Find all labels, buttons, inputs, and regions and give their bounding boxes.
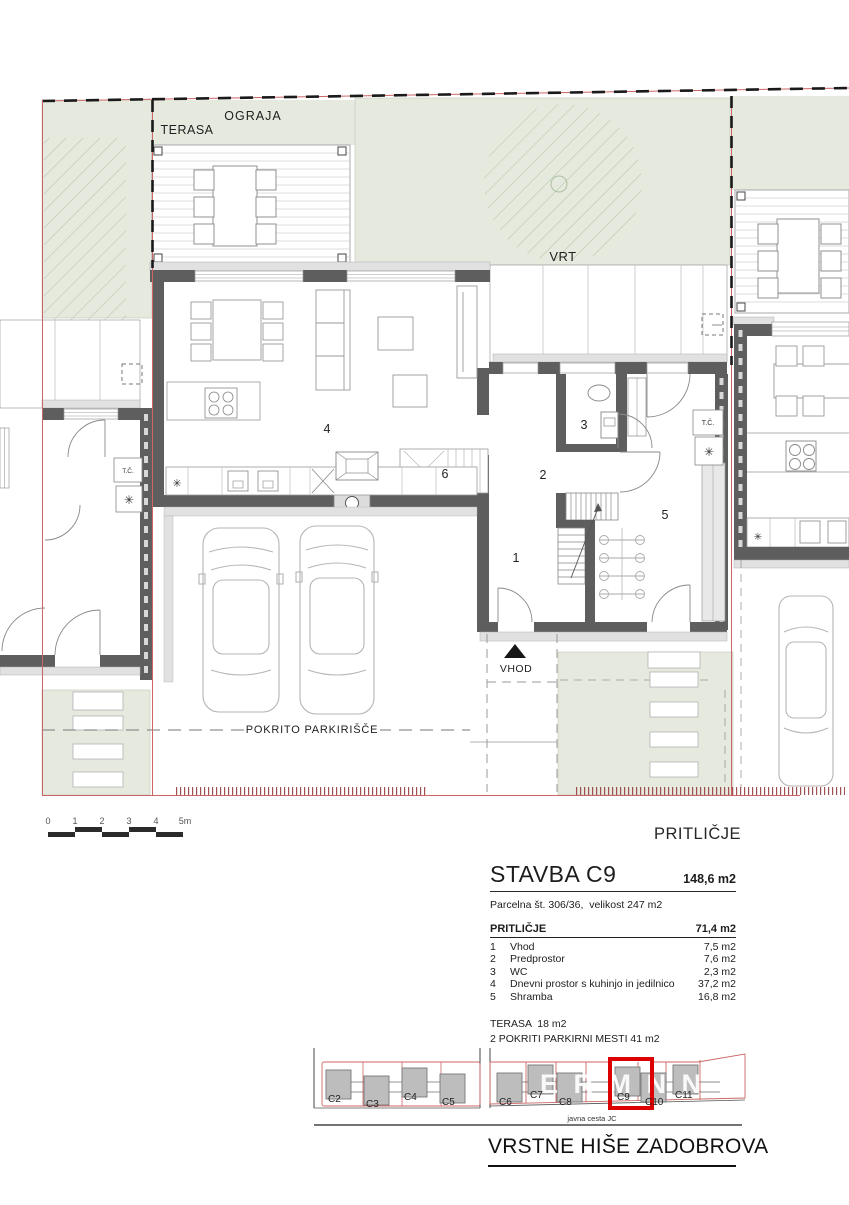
neighbor-unit-right: ✳ <box>733 317 849 788</box>
paved-path-c9 <box>490 265 727 362</box>
cabinet <box>457 286 477 378</box>
house-label-c10: C10 <box>645 1097 664 1108</box>
room-row: 5 Shramba 16,8 m2 <box>490 991 736 1003</box>
label-ograja: OGRAJA <box>224 109 281 123</box>
house-label-c8: C8 <box>559 1097 572 1108</box>
room-number-5: 5 <box>662 508 669 522</box>
scale-tick-5: 5m <box>179 816 192 826</box>
house-label-c2: C2 <box>328 1094 341 1105</box>
scale-tick-4: 4 <box>153 816 158 826</box>
room-number-2: 2 <box>540 468 547 482</box>
neighbor-stove <box>786 441 816 471</box>
heat-pump-label: T.Č. <box>702 418 715 427</box>
door-arc <box>647 374 690 417</box>
car-1 <box>199 528 283 712</box>
floor-plan-page: { "plan": { "labels": { "ograja": "OGRAJ… <box>0 0 849 1200</box>
door-arc <box>68 420 105 457</box>
entrance-arrow <box>504 644 526 658</box>
room-name: Vhod <box>510 941 704 953</box>
room-area: 16,8 m2 <box>698 991 736 1003</box>
wc-toilet <box>601 412 618 438</box>
door-arc <box>55 610 100 655</box>
room-number-6: 6 <box>442 467 449 481</box>
floor-area: 71,4 m2 <box>696 923 736 935</box>
door-arc <box>652 585 690 622</box>
building-title: STAVBA C9 <box>490 861 616 888</box>
scale-tick-3: 3 <box>126 816 131 826</box>
label-vhod: VHOD <box>500 663 532 675</box>
room-number-1: 1 <box>513 551 520 565</box>
room-num: 2 <box>490 953 510 965</box>
wc-sink <box>588 385 610 401</box>
room-area: 7,6 m2 <box>704 953 736 965</box>
room-num: 3 <box>490 966 510 978</box>
terrace-area-line: TERASA 18 m2 <box>490 1018 736 1030</box>
road-label: javna cesta JC <box>566 1114 617 1123</box>
heat-pump-label-left: T.Č. <box>122 466 134 475</box>
info-panel: STAVBA C9 148,6 m2 Parcelna št. 306/36, … <box>490 861 736 1045</box>
neighbor-car <box>779 596 833 786</box>
room-row: 2 Predprostor 7,6 m2 <box>490 953 736 965</box>
room-name: Shramba <box>510 991 698 1003</box>
garden-hatch <box>44 138 126 330</box>
door-arc <box>2 608 45 651</box>
floor-name-label: PRITLIČJE <box>654 824 741 843</box>
building-total-area: 148,6 m2 <box>683 872 736 888</box>
divider <box>490 891 736 892</box>
terrace-c9 <box>152 145 350 265</box>
house-label-c4: C4 <box>404 1092 417 1103</box>
sofa <box>316 290 350 390</box>
room-number-3: 3 <box>581 418 588 432</box>
room-area: 2,3 m2 <box>704 966 736 978</box>
room-num: 1 <box>490 941 510 953</box>
room-name: Dnevni prostor s kuhinjo in jedilnico <box>510 978 698 990</box>
terrace-neighbor-right <box>735 190 849 313</box>
equipment-star-kitchen: ✳ <box>172 478 181 490</box>
scale-tick-0: 0 <box>45 816 50 826</box>
room-num: 4 <box>490 978 510 990</box>
site-plan: E R M N N C2 C3 C4 C5 C6 C7 C8 C9 C10 C1… <box>314 1048 745 1125</box>
car-2 <box>296 526 378 714</box>
label-vrt: VRT <box>549 249 576 264</box>
door-arc <box>45 505 80 540</box>
house-label-c11: C11 <box>675 1090 693 1101</box>
house-label-c5: C5 <box>442 1097 455 1108</box>
equipment-star-left: ✳ <box>124 493 134 507</box>
floor-header-row: PRITLIČJE 71,4 m2 <box>490 923 736 938</box>
bike-rack <box>600 528 645 600</box>
project-title: VRSTNE HIŠE ZADOBROVA <box>488 1135 736 1167</box>
house-label-c3: C3 <box>366 1099 379 1110</box>
room-list: 1 Vhod 7,5 m2 2 Predprostor 7,6 m2 3 WC … <box>490 941 736 1003</box>
house-label-c7: C7 <box>530 1090 543 1101</box>
scale-bar: 0 1 2 3 4 5m <box>45 816 191 837</box>
paved-path-neighbor-left <box>0 320 142 408</box>
door-arc <box>620 452 660 492</box>
room-area: 37,2 m2 <box>698 978 736 990</box>
scale-tick-1: 1 <box>72 816 77 826</box>
parcel-info: Parcelna št. 306/36, velikost 247 m2 <box>490 899 736 911</box>
floor-name: PRITLIČJE <box>490 923 546 935</box>
equipment-star: ✳ <box>704 445 714 459</box>
terrace-dining-set <box>194 166 276 246</box>
room-number-4: 4 <box>324 422 331 436</box>
room-num: 5 <box>490 991 510 1003</box>
house-label-c9: C9 <box>617 1092 630 1103</box>
room-row: 3 WC 2,3 m2 <box>490 966 736 978</box>
equipment-star-right: ✳ <box>754 532 762 543</box>
room-area: 7,5 m2 <box>704 941 736 953</box>
kitchen-island <box>167 382 260 420</box>
label-terasa: TERASA <box>160 123 213 137</box>
scale-tick-2: 2 <box>99 816 104 826</box>
door-arc <box>498 588 532 622</box>
room-row: 4 Dnevni prostor s kuhinjo in jedilnico … <box>490 978 736 990</box>
tree-canopy <box>484 104 642 262</box>
room-name: Predprostor <box>510 953 704 965</box>
house-label-c6: C6 <box>499 1097 512 1108</box>
label-covered-parking: POKRITO PARKIRIŠČE <box>246 723 379 736</box>
room-row: 1 Vhod 7,5 m2 <box>490 941 736 953</box>
parking-area-line: 2 POKRITI PARKIRNI MESTI 41 m2 <box>490 1033 736 1045</box>
neighbor-dining-set <box>774 346 849 416</box>
room-name: WC <box>510 966 704 978</box>
